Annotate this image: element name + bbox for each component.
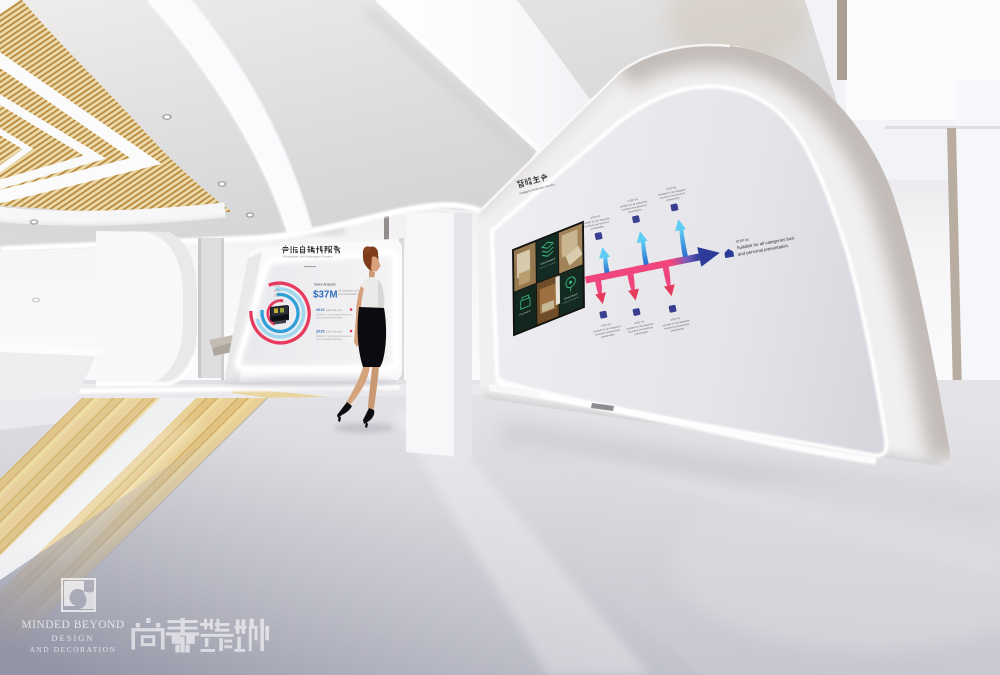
svg-text:DESIGN: DESIGN [51, 633, 94, 643]
svg-text:2013: 2013 [316, 308, 324, 312]
svg-text:$37M: $37M [313, 290, 338, 301]
svg-text:and personal presentation: and personal presentation [316, 317, 343, 320]
svg-text:Suitable for all categories bu: Suitable for all categories business [316, 314, 352, 317]
svg-text:2014: 2014 [274, 294, 280, 298]
svg-text:2015: 2015 [274, 289, 280, 293]
svg-text:2013: 2013 [274, 299, 280, 303]
svg-text:2016: 2016 [274, 284, 280, 288]
svg-text:Sales this year: Sales this year [326, 309, 342, 312]
svg-text:Sales this year: Sales this year [326, 331, 342, 334]
svg-text:and personal presentation: and personal presentation [316, 338, 343, 341]
svg-text:Sales Analysis: Sales Analysis [314, 283, 336, 287]
svg-text:2015: 2015 [316, 330, 324, 334]
svg-text:MINDED BEYOND: MINDED BEYOND [21, 619, 124, 631]
svg-text:AND DECORATION: AND DECORATION [29, 645, 116, 654]
svg-text:Suitable for all categories bu: Suitable for all categories business [316, 335, 352, 338]
svg-text:Production Line Automation Ser: Production Line Automation Service [283, 255, 332, 259]
